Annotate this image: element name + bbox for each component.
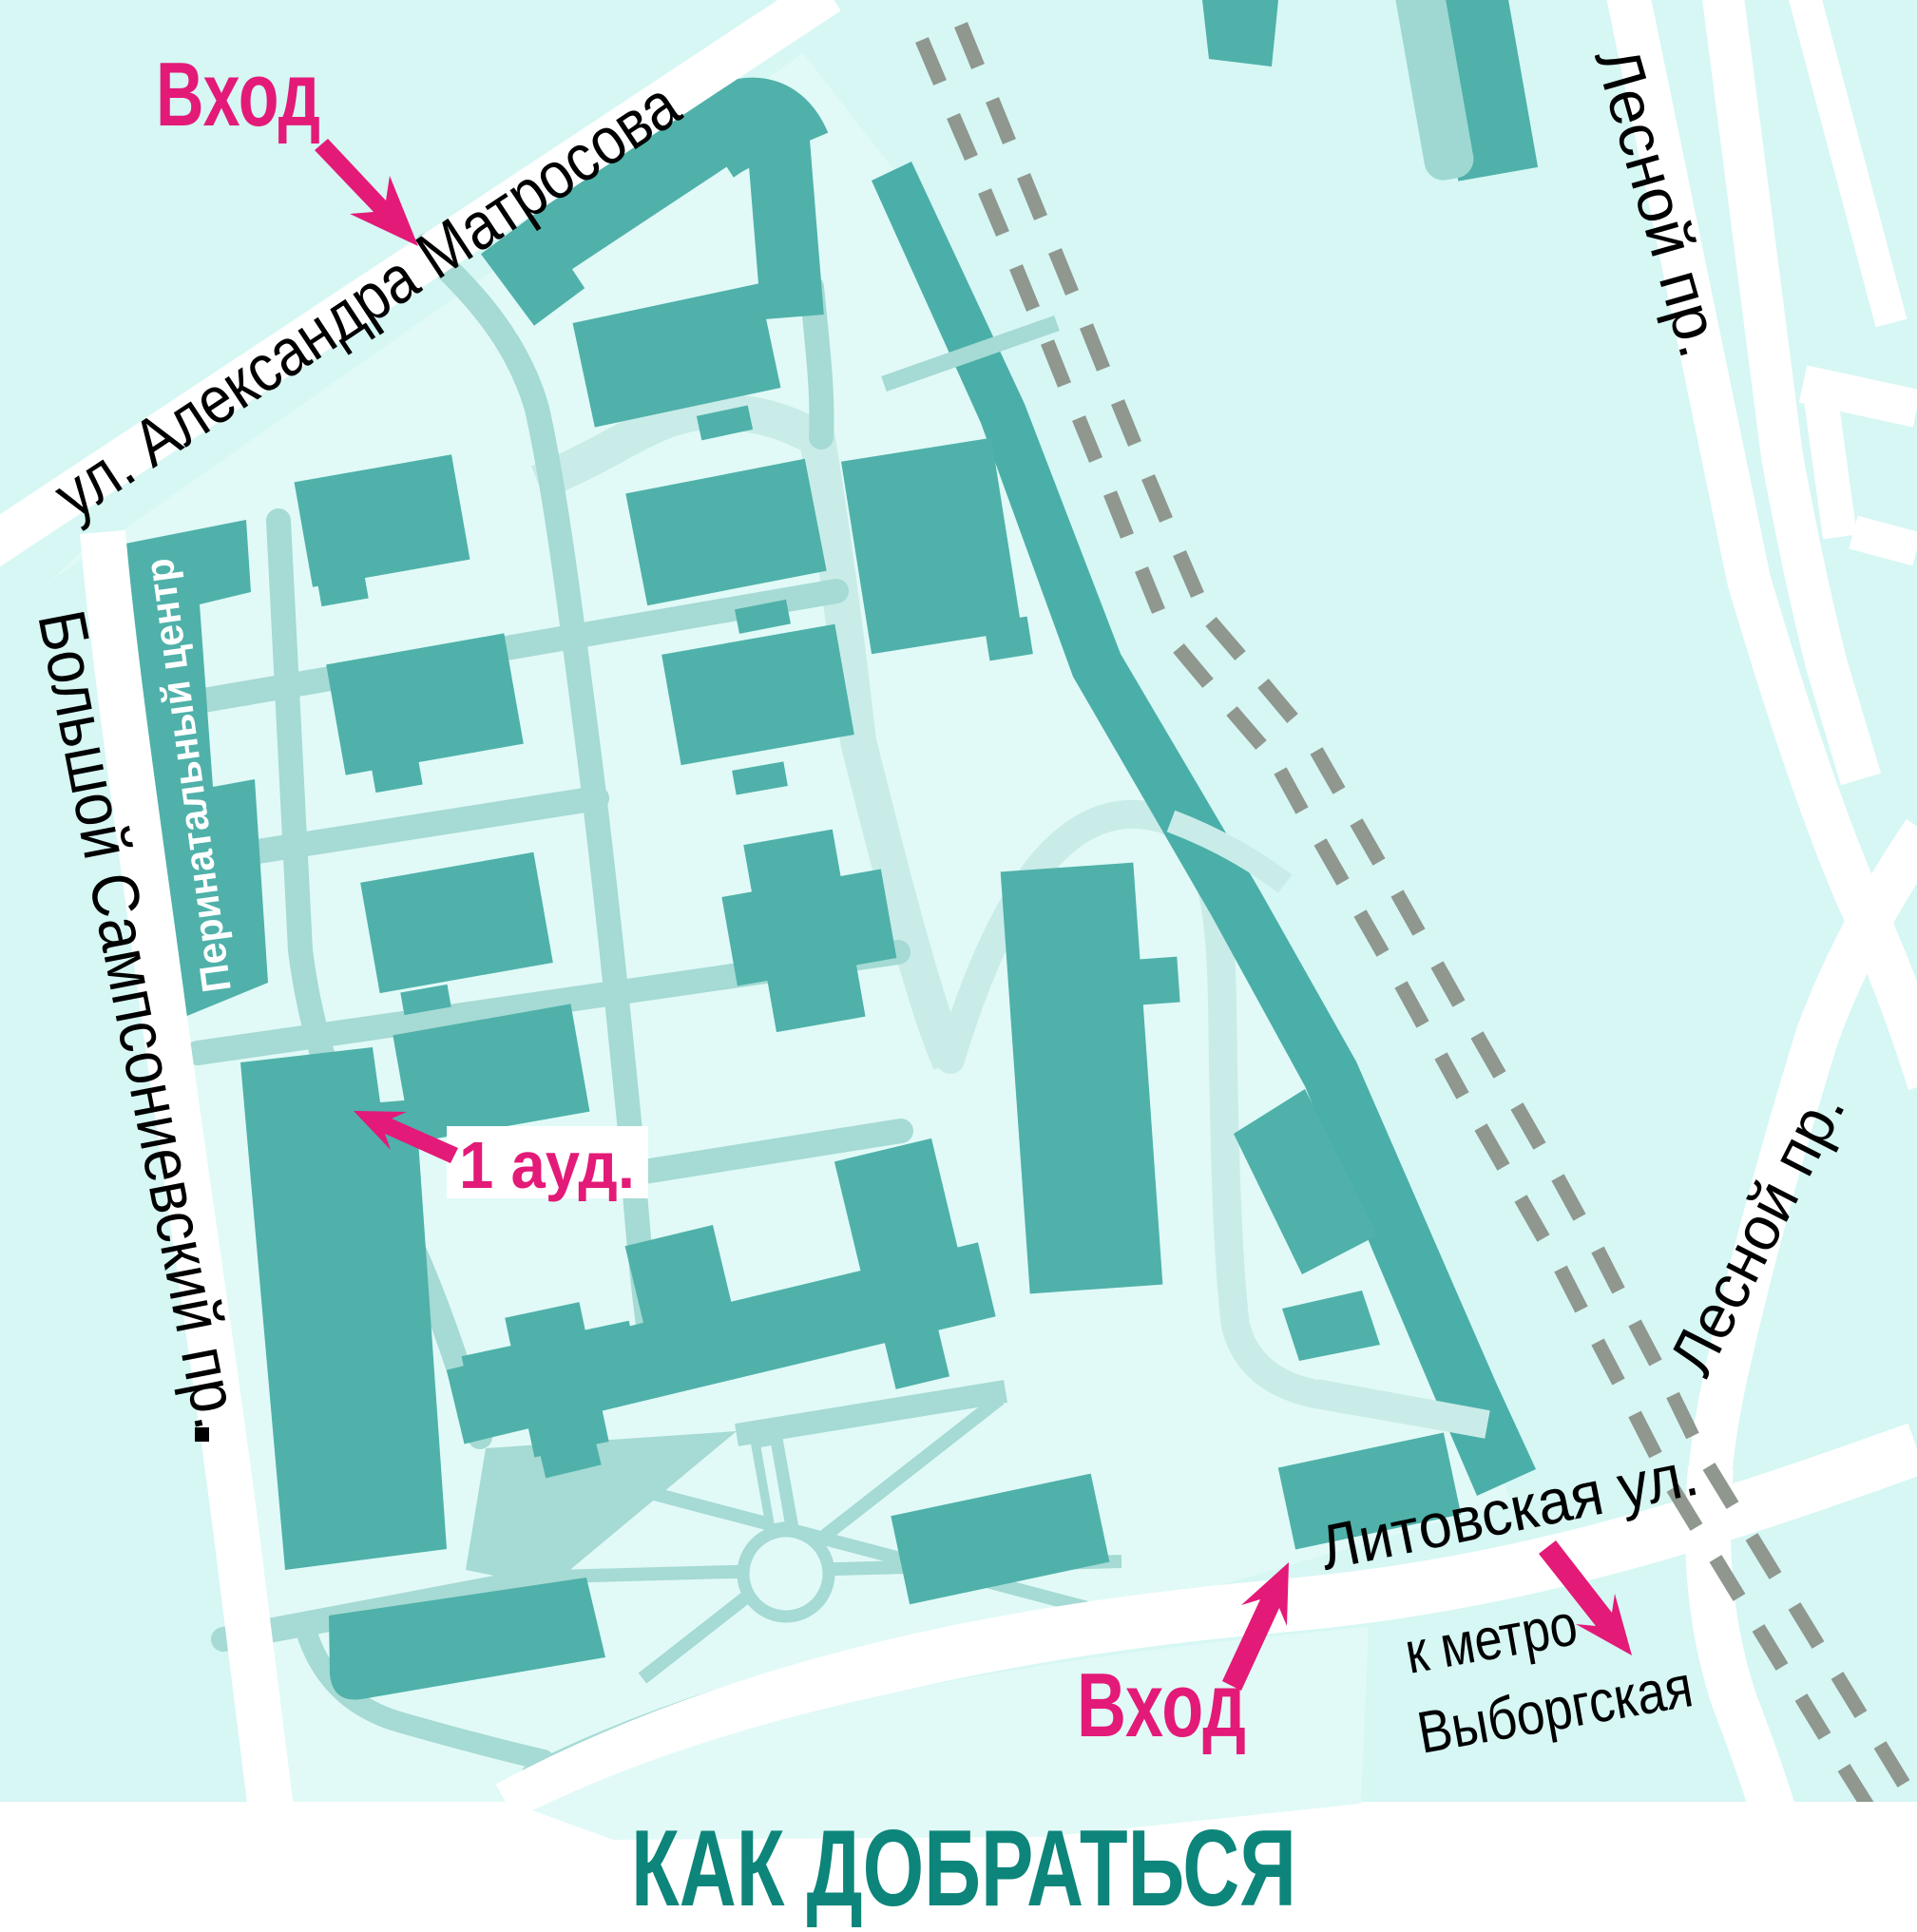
svg-text:КАК ДОБРАТЬСЯ: КАК ДОБРАТЬСЯ <box>631 1808 1296 1929</box>
svg-text:1 ауд.: 1 ауд. <box>459 1128 635 1202</box>
svg-text:Вход: Вход <box>156 44 320 145</box>
svg-text:Вход: Вход <box>1077 1655 1246 1756</box>
